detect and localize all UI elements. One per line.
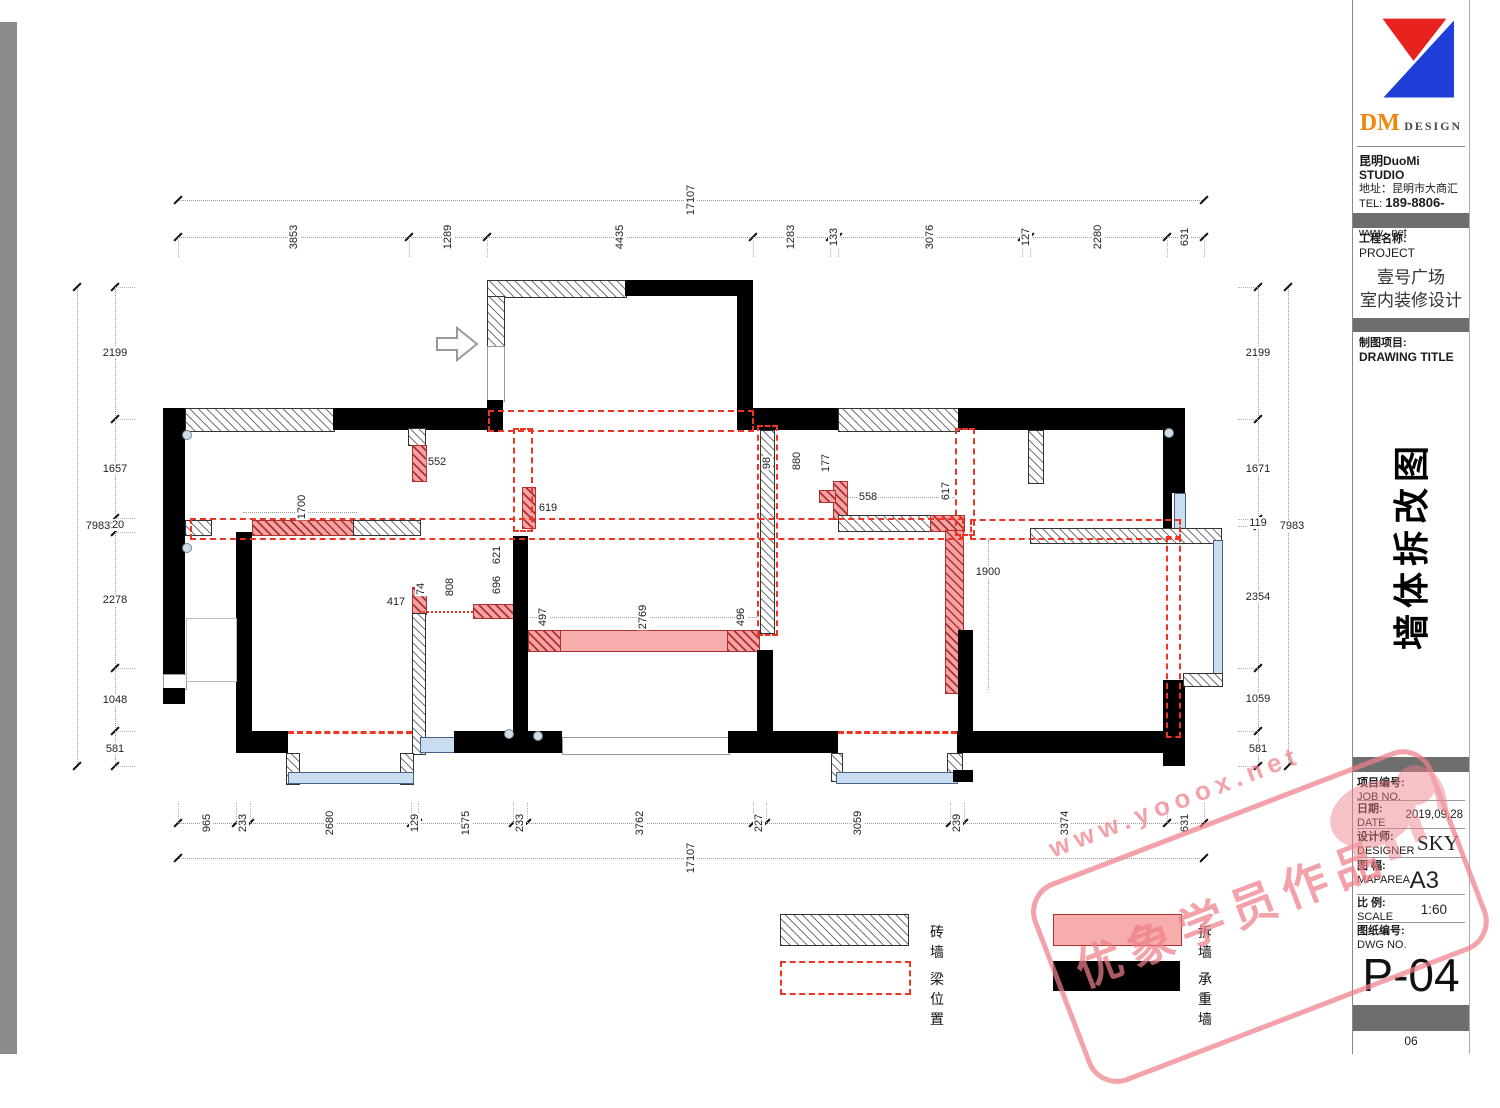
row-scale: 比 例: SCALE 1:60	[1357, 896, 1465, 923]
dim-line	[77, 287, 78, 766]
dim-label: 2278	[102, 594, 128, 606]
dim-extension-line	[1238, 287, 1258, 288]
dim-label: 631	[1179, 227, 1191, 247]
gray-bar	[1353, 757, 1469, 772]
title-block: DM DESIGN 昆明DuoMi STUDIO 地址：昆明市大商汇 TEL: …	[1352, 0, 1470, 1054]
wall-brick	[487, 280, 627, 298]
dim-label: 2280	[1092, 224, 1104, 250]
row-maparea: 图 幅: MAPAREA A3	[1357, 859, 1465, 894]
dim-label: 2769	[637, 604, 649, 630]
dim-label: 617	[940, 481, 952, 501]
dim-label: 17107	[685, 184, 697, 217]
designer-value: SKY	[1417, 831, 1459, 856]
wall-opening	[562, 737, 730, 755]
dim-label: 621	[491, 545, 503, 565]
dim-extension-line	[487, 237, 488, 257]
row-label-cn: 比 例:	[1357, 896, 1465, 910]
dim-extension-line	[766, 803, 767, 823]
row-job-no: 项目编号: JOB NO.	[1357, 776, 1465, 801]
dim-tick	[1200, 853, 1209, 862]
wall-brick	[838, 408, 960, 432]
legend-label-beam-position: 梁位置	[930, 969, 944, 1029]
legend-label-demolish-wall: 拆墙	[1198, 922, 1212, 962]
wall-opening	[487, 346, 505, 402]
dim-label: 2199	[1245, 347, 1271, 359]
dim-line	[178, 237, 1204, 238]
dim-extension-line	[1238, 731, 1258, 732]
dim-label: 3076	[924, 224, 936, 250]
dim-extension-line	[1204, 237, 1205, 257]
beam-outline	[970, 519, 1181, 540]
window	[1213, 540, 1223, 684]
column-marker	[182, 543, 192, 553]
wall-load-bearing	[333, 408, 487, 430]
dim-label: 619	[538, 502, 558, 514]
dim-label: 233	[514, 813, 526, 833]
dim-extension-line	[1238, 419, 1258, 420]
wall-load-bearing	[958, 408, 1185, 430]
legend-label-brick-wall: 砖墙	[930, 922, 944, 962]
drawing-label-cn: 制图项目:	[1359, 336, 1454, 350]
dim-label: 17107	[685, 842, 697, 875]
row-label-en: SCALE	[1357, 910, 1465, 924]
window	[288, 772, 414, 784]
dim-extension-line	[115, 287, 135, 288]
gray-bar	[1353, 1005, 1469, 1031]
column-marker	[1164, 428, 1174, 438]
dim-label: 129	[409, 813, 421, 833]
divider	[1357, 146, 1465, 147]
wall-load-bearing	[625, 280, 753, 296]
wall-load-bearing	[513, 536, 528, 731]
dim-extension-line	[1167, 237, 1168, 257]
legend-swatch-load-bearing-wall	[1053, 961, 1180, 991]
logo-design-text: DESIGN	[1404, 119, 1462, 133]
entrance-arrow-icon	[434, 324, 480, 364]
wall-load-bearing	[163, 408, 185, 674]
beam-outline	[513, 428, 533, 532]
dim-label: 3059	[852, 810, 864, 836]
dim-label: 497	[537, 607, 549, 627]
maparea-value: A3	[1410, 867, 1439, 895]
studio-address: 地址：昆明市大商汇	[1359, 182, 1467, 196]
dim-label: 581	[105, 743, 125, 755]
wall-load-bearing	[728, 731, 838, 753]
wall-load-bearing	[236, 731, 288, 753]
scale-value: 1:60	[1421, 902, 1447, 917]
dim-label: 696	[491, 575, 503, 595]
dim-label: 496	[735, 607, 747, 627]
dim-extension-line	[115, 668, 135, 669]
wall-demolish-hatch	[412, 445, 427, 482]
project-name-line2: 室内装修设计	[1353, 289, 1469, 312]
dim-label: 3762	[634, 810, 646, 836]
divider	[1357, 894, 1465, 895]
dim-label: 1048	[102, 694, 128, 706]
dim-label: 417	[386, 596, 406, 608]
dim-label: 233	[237, 813, 249, 833]
dim-label: 227	[753, 813, 765, 833]
dim-extension-line	[527, 803, 528, 823]
drawing-title-vertical: 墙体拆改图	[1383, 440, 1435, 650]
dim-label: 880	[791, 451, 803, 471]
dim-extension-line	[115, 731, 135, 732]
beam-outline	[1166, 536, 1181, 738]
dim-extension-line	[115, 419, 135, 420]
row-date: 日期: DATE 2019,09,28	[1357, 802, 1465, 829]
legend-swatch-demolish-wall	[1053, 914, 1182, 946]
logo-dm-text: DM	[1360, 110, 1400, 136]
dim-label: 1283	[785, 224, 797, 250]
page-number: 06	[1353, 1034, 1469, 1048]
dim-label: 552	[427, 456, 447, 468]
dim-label: 133	[828, 227, 840, 247]
tel-label: TEL:	[1359, 198, 1382, 210]
demolish-marker-line	[420, 611, 473, 615]
wall-load-bearing	[163, 688, 185, 704]
wall-brick	[1183, 673, 1223, 687]
window	[836, 772, 958, 784]
dim-label: 3374	[1059, 810, 1071, 836]
row-designer: 设计师: DESIGNER SKY	[1357, 830, 1465, 858]
dim-extension-line	[988, 540, 990, 690]
column-marker	[182, 430, 192, 440]
dim-tick	[1283, 761, 1292, 770]
dim-label: 177	[820, 453, 832, 473]
dwg-number: P-04	[1353, 948, 1469, 1002]
dim-label: 1657	[102, 463, 128, 475]
row-label-cn: 项目编号:	[1357, 776, 1465, 790]
beam-outline	[190, 518, 964, 540]
wall-demolish-hatch	[727, 630, 760, 652]
wall-demolish-hatch	[819, 490, 836, 503]
dim-extension-line	[115, 532, 135, 533]
wall-brick	[412, 613, 426, 755]
row-dwg-no: 图纸编号: DWG NO.	[1357, 924, 1465, 948]
dim-label: 808	[444, 577, 456, 597]
dim-label: 119	[1248, 517, 1268, 529]
closet-outline	[186, 618, 237, 682]
dim-extension-line	[115, 766, 135, 767]
wall-load-bearing	[1163, 430, 1185, 493]
dim-extension-line	[1204, 803, 1205, 823]
dim-label: 98	[761, 456, 773, 470]
drawing-label-en: DRAWING TITLE	[1359, 350, 1454, 364]
dim-extension-line	[178, 803, 179, 823]
dim-label: 2354	[1245, 591, 1271, 603]
legend-swatch-beam-position	[780, 961, 911, 995]
wall-demolish	[560, 630, 729, 652]
dim-tick	[72, 761, 81, 770]
project-label-cn: 工程名称:	[1359, 232, 1415, 246]
date-value: 2019,09,28	[1405, 809, 1463, 821]
dim-extension-line	[1167, 803, 1168, 823]
legend-swatch-brick-wall	[780, 914, 909, 946]
dim-tick	[1200, 195, 1209, 204]
dim-extension-line	[409, 237, 410, 257]
dim-label: 3853	[288, 224, 300, 250]
dim-label: 7983	[1279, 520, 1305, 532]
wall-load-bearing	[953, 770, 973, 782]
dim-extension-line	[178, 237, 179, 257]
dim-label: 1700	[296, 494, 308, 520]
logo-wordmark: DM DESIGN	[1353, 110, 1469, 137]
column-marker	[533, 731, 543, 741]
dim-extension-line	[1238, 766, 1258, 767]
dim-label: 2199	[102, 347, 128, 359]
dim-label: 7983	[85, 520, 111, 532]
dim-label: 581	[1248, 743, 1268, 755]
demolish-opening-line	[838, 731, 957, 740]
wall-brick	[408, 428, 426, 446]
project-label-en: PROJECT	[1359, 246, 1415, 260]
dim-label: 1900	[975, 566, 1001, 578]
window	[420, 737, 456, 753]
demolish-opening-line	[288, 731, 412, 740]
dim-label: 4435	[614, 224, 626, 250]
dim-label: 1575	[460, 810, 472, 836]
dim-label: 2680	[324, 810, 336, 836]
dim-extension-line	[250, 803, 251, 823]
dim-label: 631	[1179, 813, 1191, 833]
dm-design-logo	[1375, 12, 1469, 106]
row-label-cn: 图纸编号:	[1357, 924, 1465, 938]
dim-label: 127	[1020, 227, 1032, 247]
dim-label: 965	[201, 813, 213, 833]
dim-label: 74	[415, 582, 427, 596]
wall-demolish-hatch	[528, 630, 562, 652]
wall-brick	[1028, 430, 1044, 484]
wall-brick	[487, 296, 505, 348]
dim-label: 1059	[1245, 693, 1271, 705]
gray-bar	[1353, 213, 1469, 228]
legend-label-load-bearing-wall: 承重墙	[1198, 969, 1212, 1029]
project-name-line1: 壹号广场	[1353, 266, 1469, 289]
column-marker	[504, 729, 514, 739]
dim-extension-line	[964, 803, 965, 823]
dim-label: 1671	[1245, 463, 1271, 475]
wall-load-bearing	[236, 532, 252, 731]
floor-plan: 3853128944351283133307612722806319652332…	[0, 0, 1500, 1054]
dim-extension-line	[1238, 668, 1258, 669]
wall-brick	[185, 408, 335, 432]
gray-bar	[1353, 318, 1469, 332]
wall-load-bearing	[957, 731, 1185, 753]
studio-name: 昆明DuoMi STUDIO	[1359, 154, 1467, 182]
dim-label: 239	[951, 813, 963, 833]
dim-label: 1289	[442, 224, 454, 250]
dim-label: 558	[858, 491, 878, 503]
dim-extension-line	[753, 237, 754, 257]
